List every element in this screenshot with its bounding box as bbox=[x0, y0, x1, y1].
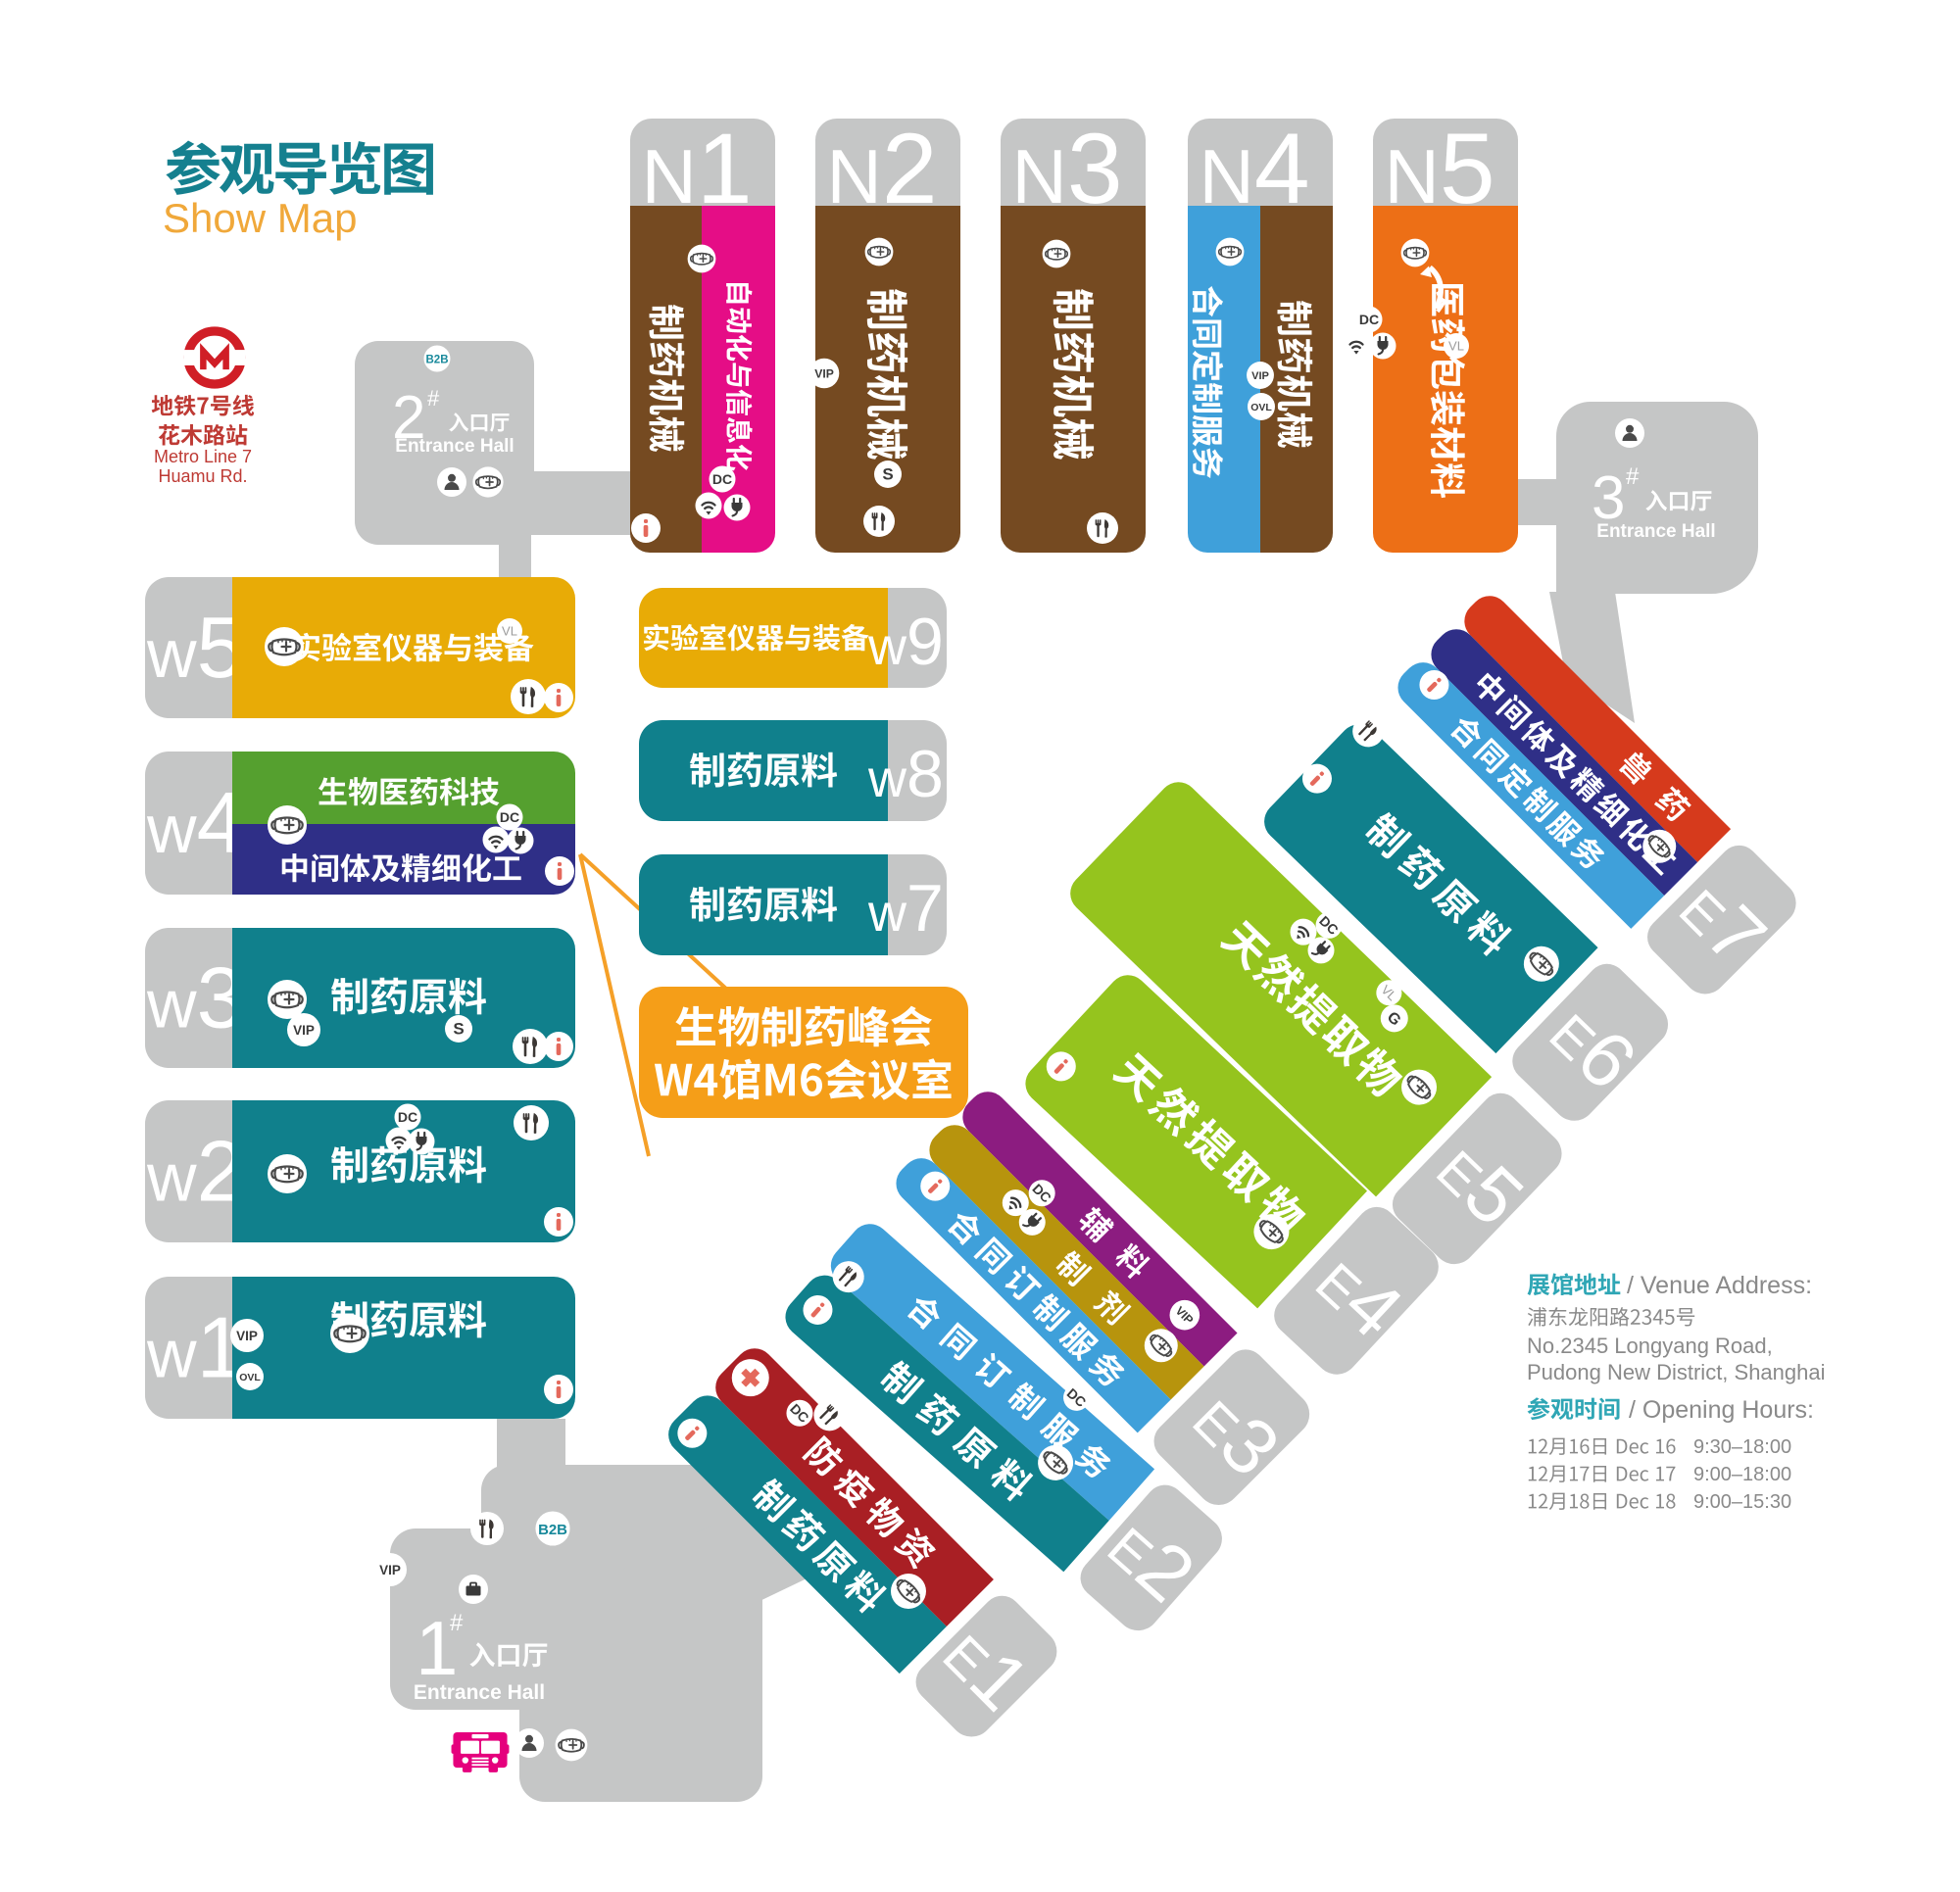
svg-text:/ Venue Address:: / Venue Address: bbox=[1627, 1272, 1812, 1299]
svg-text:Entrance Hall: Entrance Hall bbox=[414, 1681, 545, 1704]
svg-text:Huamu Rd.: Huamu Rd. bbox=[158, 466, 247, 486]
svg-text:Entrance Hall: Entrance Hall bbox=[1596, 521, 1715, 542]
svg-text:Show Map: Show Map bbox=[163, 195, 357, 241]
svg-text:No.2345 Longyang Road,: No.2345 Longyang Road, bbox=[1527, 1334, 1773, 1358]
svg-text:#: # bbox=[427, 386, 440, 411]
svg-text:9:00–18:00: 9:00–18:00 bbox=[1693, 1464, 1791, 1485]
svg-text:/ Opening Hours:: / Opening Hours: bbox=[1629, 1396, 1814, 1424]
svg-text:#: # bbox=[450, 1610, 464, 1636]
svg-text:Pudong New District, Shanghai: Pudong New District, Shanghai bbox=[1527, 1360, 1826, 1384]
svg-text:Entrance Hall: Entrance Hall bbox=[395, 436, 514, 457]
svg-text:#: # bbox=[1626, 463, 1640, 490]
svg-text:9:00–15:30: 9:00–15:30 bbox=[1693, 1491, 1791, 1513]
svg-text:Metro Line 7: Metro Line 7 bbox=[154, 447, 252, 466]
svg-text:9:30–18:00: 9:30–18:00 bbox=[1693, 1436, 1791, 1458]
